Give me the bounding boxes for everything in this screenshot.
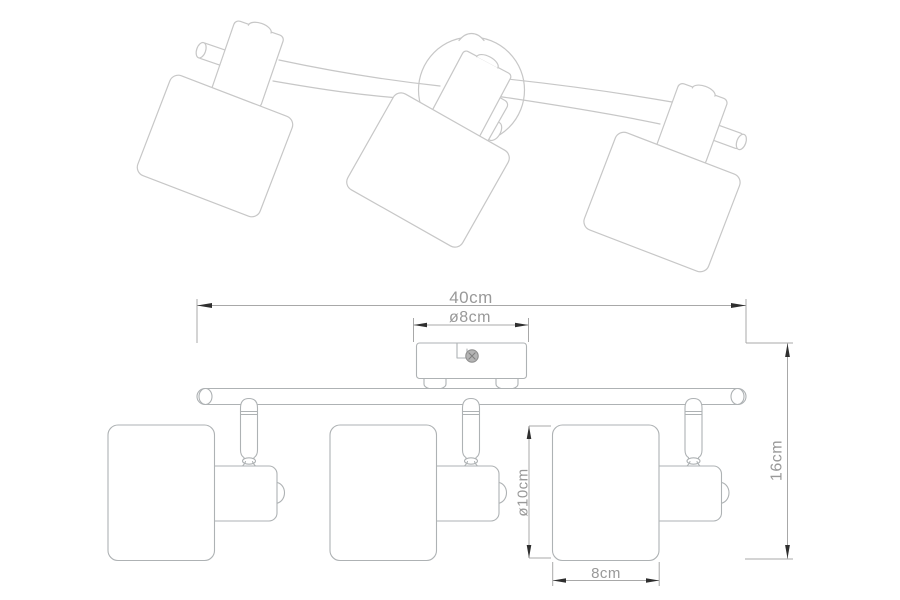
- right-lamp-shade: [581, 130, 742, 275]
- lamp-elevation-middle: [330, 399, 507, 561]
- canopy-feet: [424, 379, 518, 390]
- dimension-shade-diameter: [529, 426, 551, 558]
- left-lamp-shade: [135, 73, 296, 220]
- dimension-label-overall-height: 16cm: [769, 416, 786, 506]
- lamp-elevation-right: [553, 399, 730, 561]
- dimension-label-canopy-diameter: ø8cm: [425, 309, 515, 326]
- dimension-lines: [197, 299, 793, 586]
- dimension-label-shade-diameter: ø10cm: [515, 448, 532, 538]
- perspective-view: [135, 6, 760, 274]
- dimension-label-shade-width: 8cm: [561, 565, 651, 582]
- lamp-elevation-left: [108, 399, 285, 561]
- elevation-view: [108, 343, 746, 561]
- canopy-top-bump: [459, 34, 484, 41]
- technical-drawing-page: 40cm ø8cm 16cm ø10cm 8cm: [0, 0, 900, 600]
- mounting-screw: [466, 350, 478, 362]
- dimension-label-overall-width: 40cm: [426, 289, 516, 306]
